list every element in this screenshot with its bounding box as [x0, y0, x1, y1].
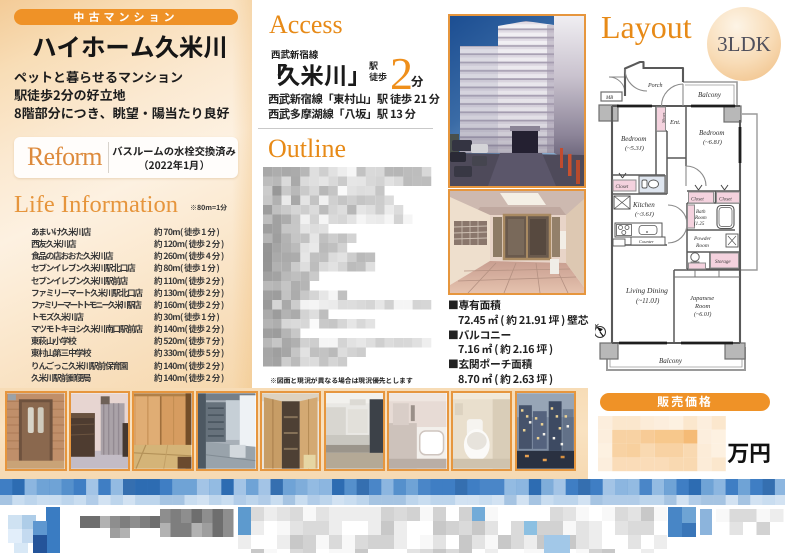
svg-text:Counter: Counter [639, 239, 654, 244]
svg-text:(1.25: (1.25 [694, 222, 705, 227]
svg-text:(~6.0J): (~6.0J) [694, 311, 711, 318]
svg-text:(~11.0J): (~11.0J) [636, 297, 660, 305]
svg-text:Balcony: Balcony [659, 357, 683, 365]
svg-text:Bedroom: Bedroom [621, 135, 646, 143]
svg-text:Closet: Closet [719, 198, 732, 203]
svg-text:Room: Room [694, 303, 710, 310]
svg-text:(~5.3J): (~5.3J) [625, 145, 644, 152]
svg-text:Room: Room [694, 216, 707, 221]
svg-text:Powder: Powder [693, 236, 712, 242]
svg-text:Shoes: Shoes [661, 112, 666, 123]
svg-text:Porch: Porch [647, 83, 662, 89]
svg-text:(~6.8J): (~6.8J) [703, 139, 722, 146]
svg-text:Bedroom: Bedroom [699, 129, 724, 137]
svg-text:MB: MB [605, 96, 613, 101]
svg-text:Balcony: Balcony [698, 91, 722, 99]
svg-text:Closet: Closet [691, 198, 704, 203]
svg-text:Closet: Closet [616, 185, 629, 190]
svg-text:Storage: Storage [715, 260, 731, 265]
svg-text:Ent.: Ent. [669, 119, 681, 126]
svg-text:Japanese: Japanese [690, 295, 714, 302]
svg-text:Room: Room [695, 243, 709, 249]
svg-text:(~3.6J): (~3.6J) [635, 211, 654, 218]
svg-text:Living Dining: Living Dining [625, 286, 668, 295]
svg-text:Bath: Bath [696, 210, 706, 215]
svg-text:Kitchen: Kitchen [632, 201, 655, 209]
